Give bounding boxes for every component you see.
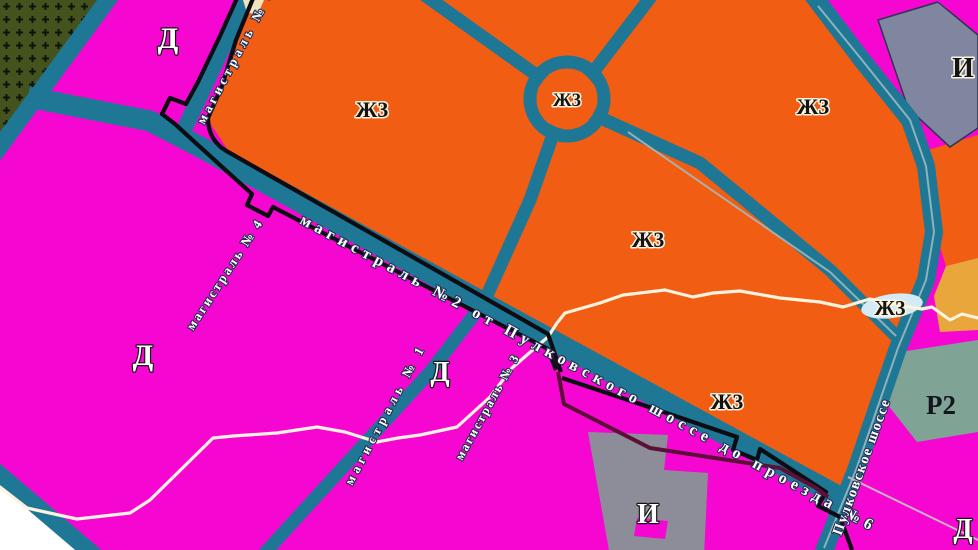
label-i-north: И: [952, 53, 974, 84]
label-d-west: Д: [133, 339, 154, 372]
label-d-center: Д: [430, 357, 449, 388]
zoning-map-canvas: Ж3 Ж3 Ж3 Ж3 Ж3 Ж3 Д Д Д Д И И Р2 магистр…: [0, 0, 978, 550]
label-zh3-roundabout: Ж3: [553, 90, 581, 111]
label-r2: Р2: [926, 390, 956, 420]
zoning-map: Ж3 Ж3 Ж3 Ж3 Ж3 Ж3 Д Д Д Д И И Р2 магистр…: [0, 0, 978, 550]
label-zh3-center: Ж3: [632, 227, 665, 252]
label-i-south: И: [637, 499, 659, 530]
label-zh3-south: Ж3: [711, 389, 744, 414]
label-d-northwest: Д: [158, 22, 179, 55]
label-zh3-northeast: Ж3: [797, 94, 830, 119]
label-zh3-pond: Ж3: [874, 296, 905, 320]
label-zh3-northwest: Ж3: [356, 97, 389, 122]
label-d-southeast: Д: [953, 514, 972, 545]
